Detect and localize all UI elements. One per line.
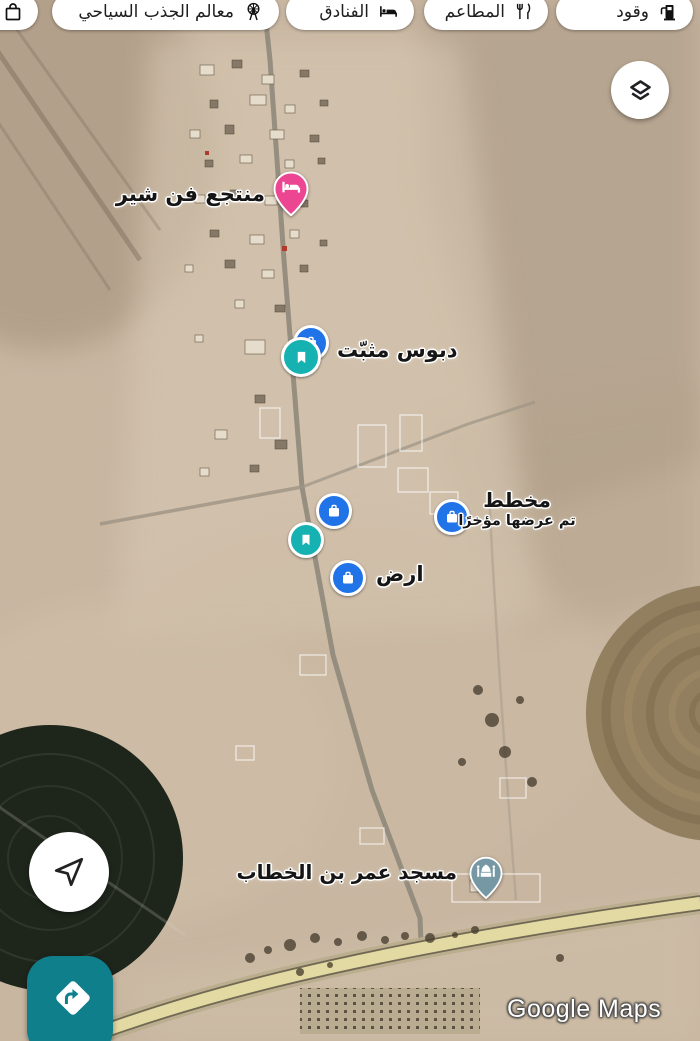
- marker-mosque-pin[interactable]: [469, 856, 503, 899]
- marker-saved-bookmark[interactable]: [288, 522, 324, 558]
- marker-resort-pin[interactable]: [273, 171, 309, 216]
- turn-right-arrow-icon: [47, 973, 95, 1021]
- suitcase-icon: [340, 570, 356, 586]
- google-maps-watermark: Google Maps: [507, 995, 661, 1024]
- navigation-arrow-icon: [52, 855, 86, 889]
- marker-resort-label[interactable]: منتجع فن شير: [116, 182, 265, 206]
- shopping-icon: [3, 2, 23, 22]
- suitcase-icon: [326, 503, 342, 519]
- fuel-icon: [658, 2, 678, 22]
- chip-restaurants[interactable]: المطاعم: [424, 0, 548, 30]
- restaurants-icon: [514, 2, 533, 21]
- bookmark-icon: [294, 350, 309, 365]
- chip-attractions-label: معالم الجذب السياحي: [78, 2, 234, 22]
- bookmark-icon: [299, 533, 313, 547]
- plan-label-line2: تم عرضها مؤخرًا: [442, 513, 592, 529]
- chip-hotels[interactable]: الفنادق: [286, 0, 414, 30]
- layers-icon: [627, 77, 654, 104]
- marker-saved-place[interactable]: [316, 493, 352, 529]
- chip-hotels-label: الفنادق: [319, 2, 369, 22]
- chip-fuel-label: وقود: [616, 2, 649, 22]
- google-maps-screen: منتجع فن شير دبوس مثبّت مخطط تم عرض: [0, 0, 700, 1041]
- orchard-grid: [300, 988, 480, 1034]
- directions-fab[interactable]: [27, 956, 113, 1041]
- hotels-icon: [378, 1, 399, 22]
- marker-land-label[interactable]: ارض: [376, 562, 424, 586]
- chip-fuel[interactable]: وقود: [556, 0, 693, 30]
- chip-restaurants-label: المطاعم: [445, 2, 505, 22]
- marker-pinned-label[interactable]: دبوس مثبّت: [337, 338, 458, 362]
- marker-mosque-label[interactable]: مسجد عمر بن الخطاب: [237, 860, 457, 884]
- marker-pinned-pin[interactable]: [281, 337, 321, 377]
- chip-attractions[interactable]: معالم الجذب السياحي: [52, 0, 279, 30]
- marker-land[interactable]: [330, 560, 366, 596]
- attractions-icon: [243, 1, 264, 22]
- marker-plan-label[interactable]: مخطط تم عرضها مؤخرًا: [442, 488, 592, 529]
- plan-label-line1: مخطط: [442, 488, 592, 512]
- my-location-button[interactable]: [29, 832, 109, 912]
- layers-button[interactable]: [611, 61, 669, 119]
